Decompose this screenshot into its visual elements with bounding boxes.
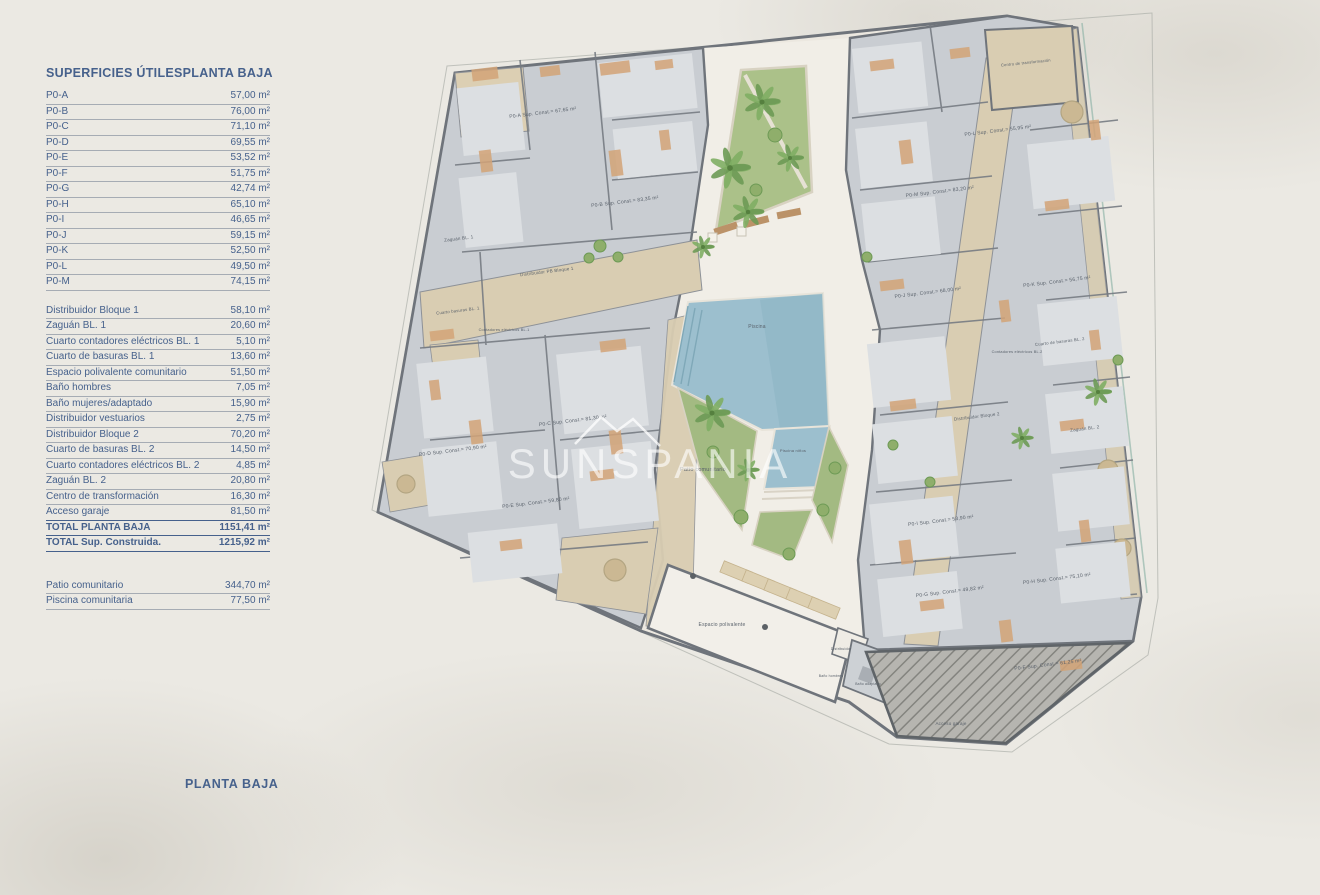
floor-plan-drawing: P0-A Sup. Const.= 67,65 m²P0-B Sup. Cons…	[0, 0, 1320, 895]
room-patch	[468, 523, 563, 582]
bush	[1113, 355, 1123, 365]
room-patch	[861, 196, 941, 261]
room-patch	[1055, 541, 1130, 603]
bush	[829, 462, 841, 474]
plan-room-label: Acceso garaje	[935, 721, 966, 726]
room-patch	[1027, 136, 1115, 209]
room-patch	[613, 121, 698, 179]
bush	[584, 253, 594, 263]
garage-ramp	[866, 643, 1130, 743]
plan-room-label: Contadores eléctricos BL.2	[992, 350, 1043, 354]
plan-room-label: Baño hombres	[819, 674, 844, 678]
bush	[594, 240, 606, 252]
room-patch	[855, 121, 933, 188]
bush	[925, 477, 935, 487]
room-patch	[867, 336, 951, 408]
page: SUPERFICIES ÚTILES PLANTA BAJA P0-A57,00…	[0, 0, 1320, 895]
room-patch	[1037, 296, 1123, 366]
bush	[750, 184, 762, 196]
bush	[613, 252, 623, 262]
bush	[817, 504, 829, 516]
bush	[783, 548, 795, 560]
plan-room-label: Espacio polivalente	[699, 622, 746, 628]
watermark-text: SUNSPANIA	[508, 440, 793, 487]
bush	[888, 440, 898, 450]
plan-room-label: Piscina	[748, 324, 766, 330]
column	[690, 573, 696, 579]
plan-room-label: Contadores eléctricos BL.1	[479, 328, 530, 332]
centro-transformacion-room	[985, 26, 1078, 110]
plan-room-label: Distribuidor	[831, 647, 852, 651]
room-patch	[416, 357, 493, 439]
column	[762, 624, 768, 630]
room-patch	[1052, 466, 1130, 531]
plan-room-label: Baño adaptado	[855, 682, 881, 686]
bush	[768, 128, 782, 142]
bush	[862, 252, 872, 262]
bush	[734, 510, 748, 524]
room-patch	[872, 416, 958, 484]
room-patch	[869, 496, 959, 564]
room-patch	[852, 42, 928, 114]
